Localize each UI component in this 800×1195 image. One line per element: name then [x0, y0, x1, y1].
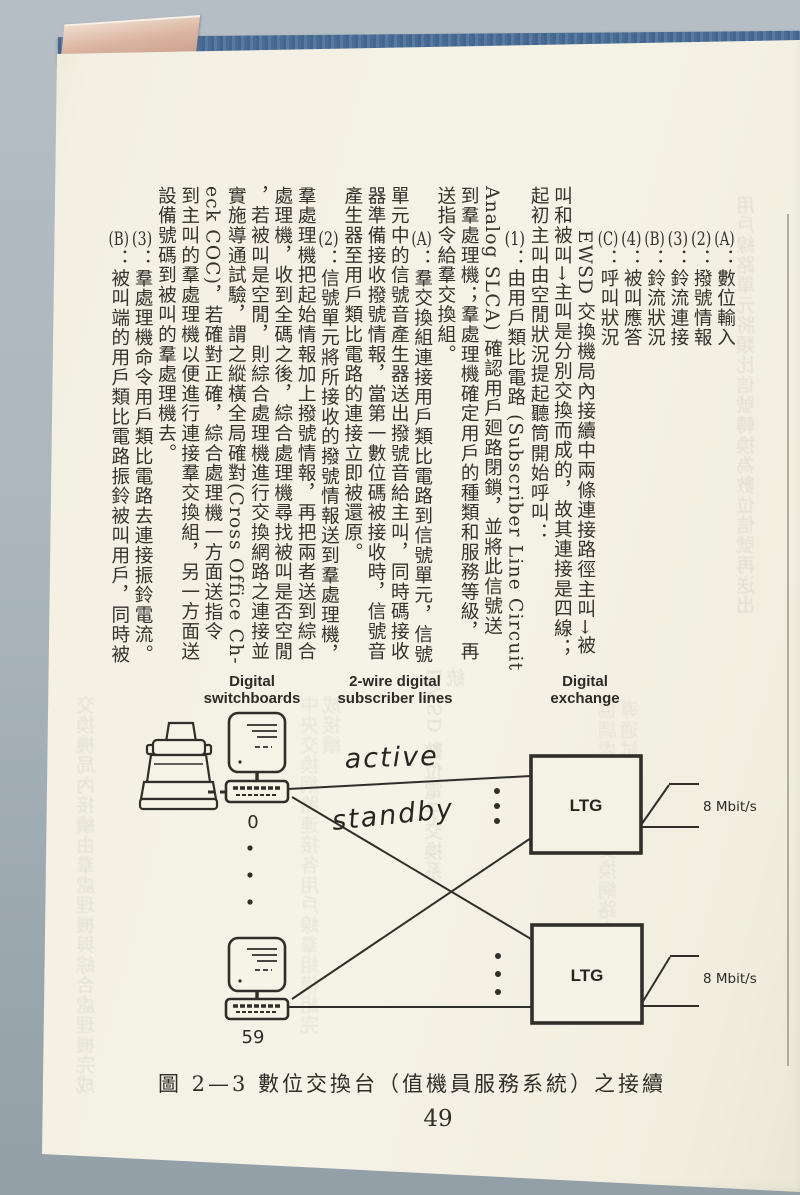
- text-column: (C)：呼叫狀況: [596, 186, 619, 670]
- book-page: 用戶線路單元將類比信號轉換為數位信號再送出協調處理機控制交換網路之連接並作導通試…: [0, 0, 800, 1195]
- vertical-text-block: (A)：數位輸入(2)：撥號情報(3)：鈴流連接(B)：鈴流狀況(4)：被叫應答…: [104, 186, 736, 670]
- terminals-ellipsis: [247, 845, 252, 904]
- text-column: (3)：羣處理機命令用戶類比電路去連接振鈴電流。: [130, 186, 153, 670]
- text-column: 到主叫的羣處理機以便進行連接羣交換組，另一方面送: [177, 186, 200, 670]
- ltg-top-ellipsis: [494, 788, 500, 824]
- ltg-bottom-ellipsis: [495, 953, 501, 995]
- header-digital-exchange-1: Digital: [562, 673, 608, 690]
- terminal-0-icon: [226, 713, 288, 802]
- text-column: 設備號碼到被叫的羣處理機去。: [154, 186, 177, 670]
- text-column: (3)：鈴流連接: [666, 186, 689, 670]
- ltg-bottom-label: LTG: [571, 966, 604, 985]
- text-column: (2)：信號單元將所接收的撥號情報送到羣處理機，: [317, 186, 340, 670]
- page-number: 49: [38, 1106, 800, 1132]
- header-digital-switchboards-1: Digital: [229, 673, 275, 690]
- text-column: (B)：鈴流狀況: [643, 186, 666, 670]
- text-column: 送指令給羣交換組。: [433, 186, 456, 670]
- text-column: 叫和被叫→主叫是分別交換而成的，故其連接是四線；: [550, 186, 573, 670]
- header-subscriber-lines-1: 2-wire digital: [349, 673, 441, 690]
- text-column: (A)：羣交換組連接用戶類比電路到信號單元，信號: [410, 186, 433, 670]
- ltg-top-label: LTG: [570, 796, 603, 815]
- text-column: 起初主叫由空閒狀況提起聽筒開始呼叫：: [526, 186, 549, 670]
- text-column: (1)：由用戶類比電路 (Subscriber Line Circuit: [503, 186, 526, 670]
- ltg-top-output-lines: [641, 784, 699, 827]
- bleedthrough-line: 用戶線路單元將類比信號轉換為數位信號再送出: [736, 195, 758, 650]
- terminal-59-number: 59: [242, 1027, 265, 1048]
- text-column: (B)：被叫端的用戶類比電路振鈴被叫用戶，同時被: [107, 186, 130, 670]
- text-column: 產生器至用戶類比電路的連接立即被還原。: [340, 186, 363, 670]
- text-column: 單元中的信號音產生器送出撥號音給主叫，同時碼接收: [387, 186, 410, 670]
- header-digital-exchange-2: exchange: [550, 690, 619, 707]
- ltg-bottom-output-lines: [642, 956, 699, 1006]
- text-column: 實施導通試驗，謂之縱橫全局確對(Cross Office Ch-: [223, 186, 246, 670]
- text-column: (4)：被叫應答: [620, 186, 643, 670]
- standby-label: standby: [330, 793, 455, 837]
- text-column: EWSD 交換機局內接續中兩條連接路徑主叫→被: [573, 186, 596, 670]
- text-column: 器準備接收撥號情報，當第一數位碼被接收時，信號音: [363, 186, 386, 670]
- text-column: (A)：數位輸入: [713, 186, 736, 670]
- terminal-0-number: 0: [247, 812, 258, 833]
- ltg-bottom-rate: 8 Mbit/s: [703, 971, 757, 987]
- figure-diagram: Digital switchboards 2-wire digital subs…: [0, 650, 800, 1080]
- header-subscriber-lines-2: subscriber lines: [337, 690, 452, 707]
- terminal-59-icon: [226, 938, 288, 1019]
- text-column: ，若被叫是空閒，則綜合處理機進行交換網路之連接並: [247, 186, 270, 670]
- line-active: [288, 776, 531, 789]
- text-column: eck COC)，若確對正確，綜合處理機一方面送指令: [200, 186, 223, 670]
- ltg-top-rate: 8 Mbit/s: [703, 799, 757, 815]
- active-label: active: [344, 741, 439, 775]
- photo-of-book-page: 用戶線路單元將類比信號轉換為數位信號再送出協調處理機控制交換網路之連接並作導通試…: [0, 0, 800, 1195]
- text-column: 到羣處理機；羣處理機確定用戶的種類和服務等級，再: [456, 186, 479, 670]
- figure-caption: 圖 2—3 數位交換台（值機員服務系統）之接續: [12, 1068, 800, 1098]
- printer-icon: [140, 723, 217, 809]
- text-column: 處理機，收到全碼之後，綜合處理機尋找被叫是否空閒: [270, 186, 293, 670]
- header-digital-switchboards-2: switchboards: [204, 690, 301, 707]
- text-column: (2)：撥號情報: [689, 186, 712, 670]
- text-column: 羣處理機把起始情報加上撥號情報，再把兩者送到綜合: [293, 186, 316, 670]
- text-column: Analog SLCA) 確認用戶廻路閉鎖，並將此信號送: [480, 186, 503, 670]
